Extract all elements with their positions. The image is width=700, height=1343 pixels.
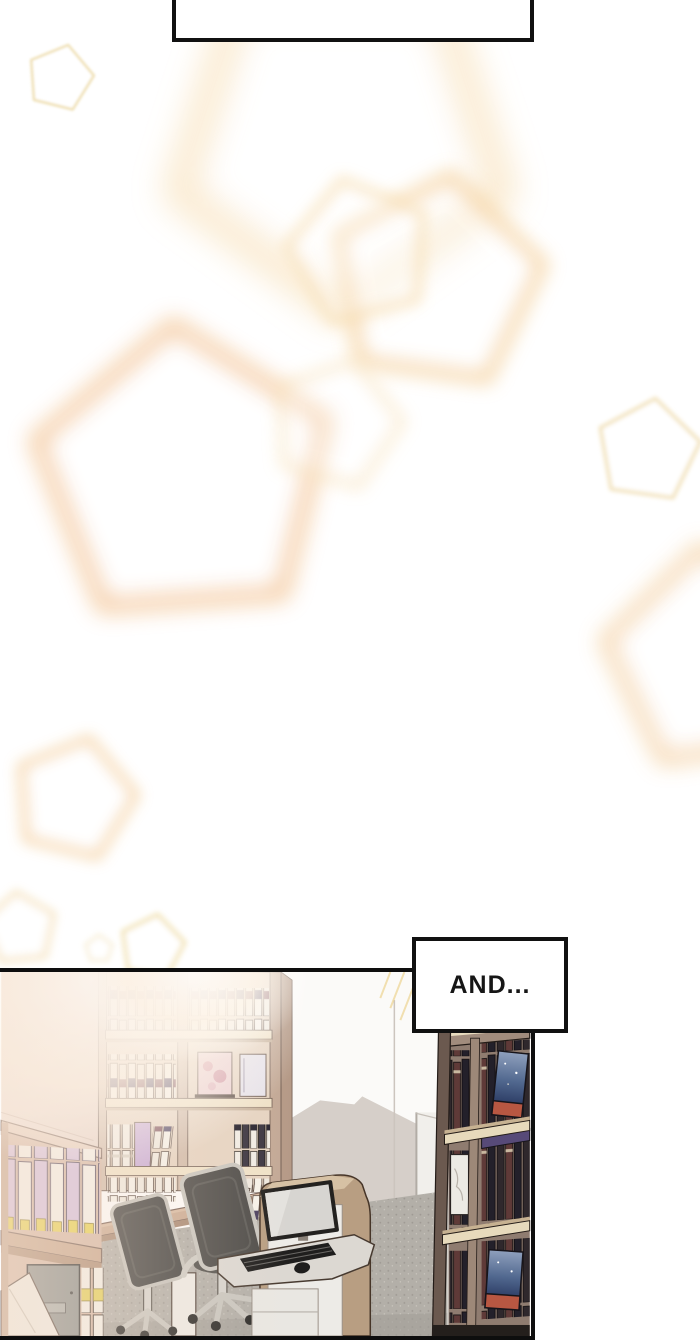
pentagon-bokeh: [86, 935, 113, 960]
speech-bubble-top: [172, 0, 534, 42]
pentagon-bokeh: [21, 739, 135, 857]
pentagon-bokeh: [600, 399, 700, 498]
caption-text: AND...: [450, 971, 531, 1000]
caption-box-and: AND...: [412, 937, 568, 1033]
pentagon-bokeh: [606, 549, 700, 759]
pentagon-bokeh: [281, 361, 402, 486]
pentagon-bokeh: [31, 45, 94, 110]
pentagon-bokeh: [0, 892, 54, 961]
